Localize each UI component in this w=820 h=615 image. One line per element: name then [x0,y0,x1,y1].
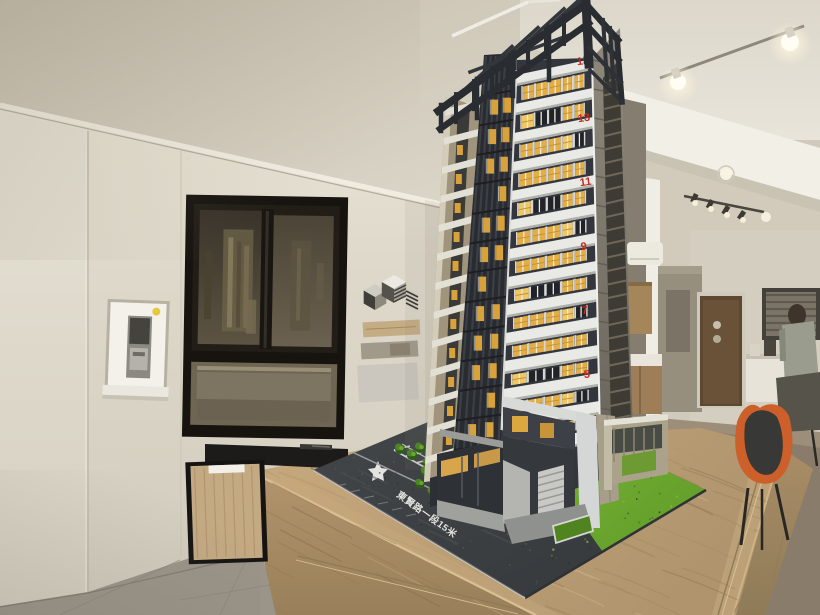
svg-text:11: 11 [579,176,592,190]
svg-text:13: 13 [577,112,591,126]
